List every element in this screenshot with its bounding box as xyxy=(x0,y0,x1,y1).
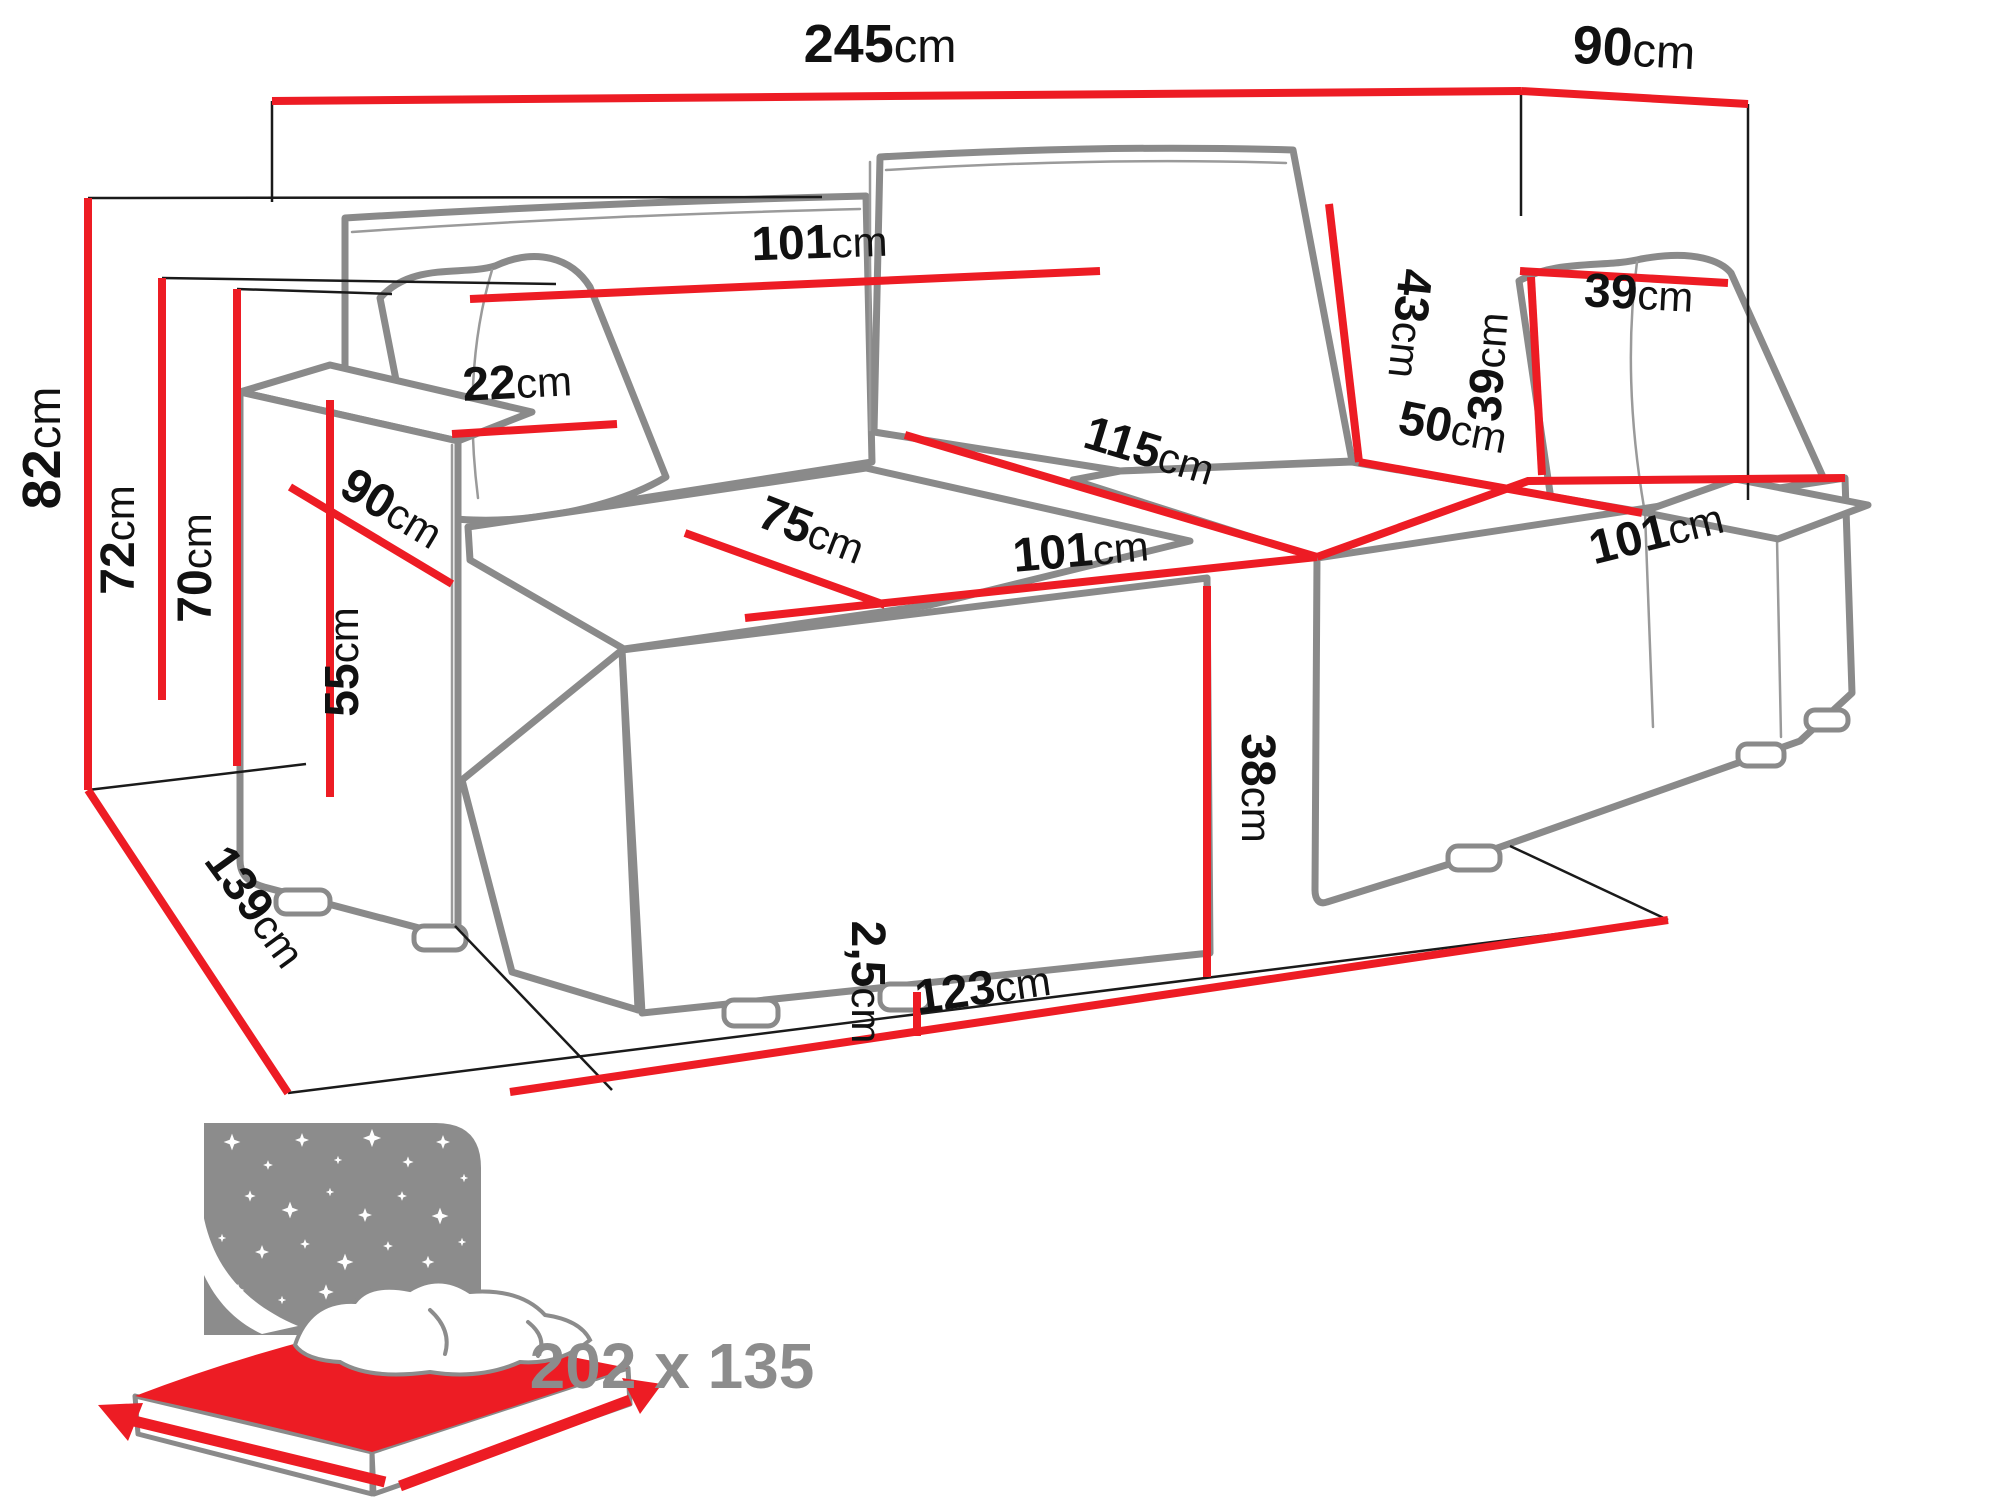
sofa-foot xyxy=(724,1000,778,1026)
dim-label-pillow-width: 39cm xyxy=(1583,264,1695,323)
dim-label-backrest-height-inner: 70cm xyxy=(169,513,222,622)
dim-label-overall-depth-right: 90cm xyxy=(1571,15,1697,81)
sofa-foot xyxy=(1448,846,1500,870)
diagram-canvas: 245cm 90cm 82cm 72cm 70cm 101cm 43cm 39c… xyxy=(0,0,2000,1500)
sleeping-area-size-label: 202 x 135 xyxy=(530,1330,815,1402)
dim-label-backrest-height: 72cm xyxy=(92,485,145,594)
dim-label-armrest-width: 22cm xyxy=(461,353,573,412)
seat-side-left xyxy=(462,650,638,1010)
dim-label-back-cushion-height: 43cm xyxy=(1377,266,1441,380)
dim-label-leg-clearance: 2,5cm xyxy=(841,921,894,1044)
front-panel xyxy=(622,578,1210,1013)
dim-line-overall-depth-right xyxy=(1521,91,1748,104)
dim-line-overall-width xyxy=(272,91,1521,101)
dim-label-pillow-height: 39cm xyxy=(1458,311,1519,424)
sofa-foot xyxy=(1806,710,1848,730)
dim-label-seat-front-height: 38cm xyxy=(1231,733,1284,842)
dim-label-total-height: 82cm xyxy=(12,387,72,510)
dim-label-overall-width: 245cm xyxy=(804,14,957,74)
dim-label-backrest-width: 101cm xyxy=(751,214,889,272)
dim-label-armrest-height: 55cm xyxy=(316,607,369,716)
sleeping-area-icon: 202 x 135 xyxy=(98,1123,814,1494)
sofa-dimension-diagram: 245cm 90cm 82cm 72cm 70cm 101cm 43cm 39c… xyxy=(0,0,2000,1500)
sofa-foot xyxy=(1738,744,1784,766)
